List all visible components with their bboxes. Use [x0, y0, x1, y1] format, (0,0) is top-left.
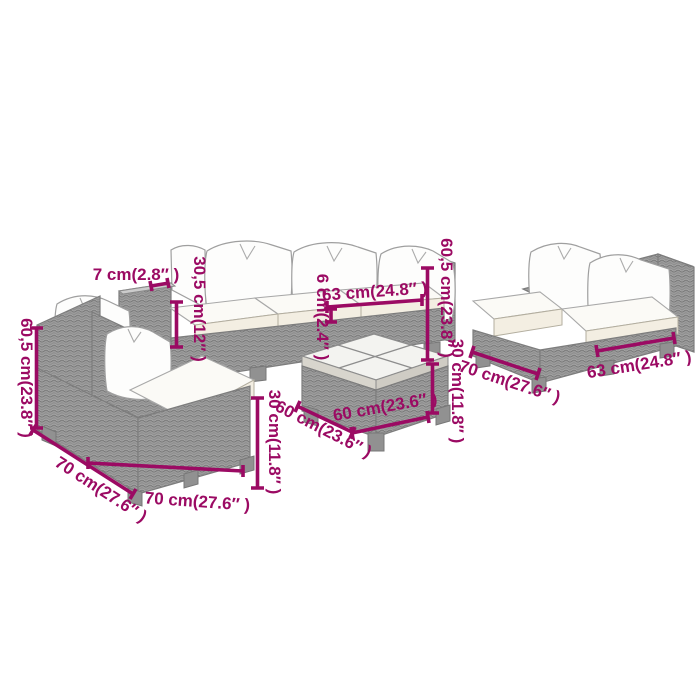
product-dimension-diagram: 7 cm(2.8″ ) 30,5 cm(12″ ) 6 cm(2.4″ ) 63… — [0, 0, 700, 700]
dim-label-left-front-depth: 70 cm(27.6″ ) — [144, 488, 251, 514]
dim-label-arm-width: 7 cm(2.8″ ) — [93, 265, 180, 284]
dim-label-total-height-left: 60,5 cm(23.8″ ) — [17, 318, 36, 438]
dim-label-arm-height: 30,5 cm(12″ ) — [190, 256, 209, 361]
dim-label-table-height: 30 cm(11.8″ ) — [448, 339, 467, 444]
diagram-canvas: 7 cm(2.8″ ) 30,5 cm(12″ ) 6 cm(2.4″ ) 63… — [0, 0, 700, 700]
